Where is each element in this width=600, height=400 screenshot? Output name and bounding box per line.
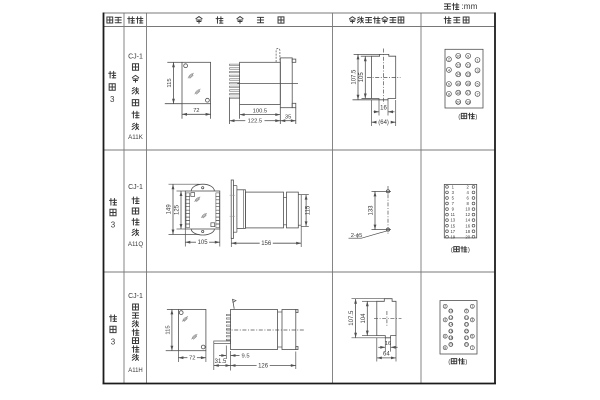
svg-text:15: 15 — [466, 82, 470, 86]
svg-text:16: 16 — [449, 329, 453, 333]
svg-text:20: 20 — [449, 343, 453, 347]
svg-text:31.5: 31.5 — [215, 359, 227, 365]
svg-text:CJ-1: CJ-1 — [128, 184, 143, 191]
svg-text:10: 10 — [465, 207, 470, 212]
svg-text:14: 14 — [449, 323, 453, 327]
svg-text:7: 7 — [471, 346, 473, 350]
svg-text:3: 3 — [476, 69, 478, 73]
svg-text:CJ-1: CJ-1 — [128, 54, 143, 61]
svg-text:19: 19 — [466, 100, 470, 104]
svg-text:1: 1 — [476, 58, 478, 62]
svg-text:10: 10 — [456, 54, 460, 58]
svg-text:16: 16 — [380, 105, 387, 111]
svg-text:8: 8 — [444, 346, 446, 350]
svg-text:): ) — [465, 358, 467, 365]
svg-text:11: 11 — [451, 212, 456, 217]
svg-text:3: 3 — [111, 220, 116, 229]
svg-text:6: 6 — [448, 82, 450, 86]
svg-text:35: 35 — [285, 115, 291, 121]
svg-text:10: 10 — [449, 309, 453, 313]
svg-text:): ) — [475, 113, 477, 120]
svg-text:(64): (64) — [378, 120, 389, 126]
svg-text:3: 3 — [471, 318, 473, 322]
svg-text:5: 5 — [471, 334, 473, 338]
svg-text:18: 18 — [465, 229, 470, 234]
svg-text:6: 6 — [444, 334, 446, 338]
svg-text:7: 7 — [476, 92, 478, 96]
svg-text:9: 9 — [466, 309, 468, 313]
svg-text:17: 17 — [465, 336, 469, 340]
svg-text:16: 16 — [465, 223, 470, 228]
svg-text:19: 19 — [450, 234, 455, 239]
svg-text:15: 15 — [450, 223, 455, 228]
svg-text:13: 13 — [465, 323, 469, 327]
svg-text:11: 11 — [466, 64, 470, 68]
svg-text:100.5: 100.5 — [253, 108, 268, 114]
svg-text:9: 9 — [467, 54, 469, 58]
svg-text:2-ϕ5: 2-ϕ5 — [351, 233, 363, 239]
svg-text:11: 11 — [465, 316, 469, 320]
svg-text:5: 5 — [476, 82, 478, 86]
svg-text:13: 13 — [466, 73, 470, 77]
svg-text:2: 2 — [448, 58, 450, 62]
svg-text:A11K: A11K — [128, 134, 144, 141]
svg-text:A11H: A11H — [128, 368, 143, 374]
svg-text:12: 12 — [449, 316, 453, 320]
svg-text:17: 17 — [450, 229, 455, 234]
svg-text:107.5: 107.5 — [352, 69, 358, 85]
svg-text:18: 18 — [449, 336, 453, 340]
svg-text:107.5: 107.5 — [349, 310, 355, 326]
svg-text:115: 115 — [167, 78, 173, 87]
svg-text:12: 12 — [465, 212, 470, 217]
svg-text:126: 126 — [258, 364, 269, 370]
svg-text:115: 115 — [166, 325, 172, 334]
svg-text:16: 16 — [385, 341, 391, 347]
svg-text:8: 8 — [448, 92, 450, 96]
svg-text:19: 19 — [465, 343, 469, 347]
svg-text:16: 16 — [456, 82, 460, 86]
svg-text:14: 14 — [456, 73, 460, 77]
svg-text:20: 20 — [465, 234, 470, 239]
svg-text:14: 14 — [465, 218, 470, 223]
svg-text:1: 1 — [471, 305, 473, 309]
svg-text:72: 72 — [189, 356, 195, 362]
svg-text:64: 64 — [383, 352, 390, 358]
svg-text:): ) — [468, 246, 470, 253]
svg-text:72: 72 — [193, 108, 199, 114]
svg-text:3: 3 — [110, 95, 115, 104]
svg-text:105: 105 — [359, 72, 365, 83]
svg-text:104: 104 — [361, 313, 367, 324]
svg-text:156: 156 — [261, 241, 272, 247]
svg-text:A11Q: A11Q — [128, 241, 144, 248]
svg-text:15: 15 — [465, 329, 469, 333]
svg-text:12: 12 — [456, 64, 460, 68]
svg-text:17: 17 — [466, 91, 470, 95]
svg-text:105: 105 — [198, 240, 209, 246]
svg-text:122.5: 122.5 — [248, 119, 263, 125]
svg-text:149: 149 — [167, 204, 173, 215]
svg-text::mm: :mm — [462, 2, 478, 11]
svg-text:125: 125 — [175, 204, 181, 215]
svg-text:115: 115 — [306, 205, 312, 215]
svg-text:20: 20 — [456, 100, 460, 104]
svg-text:9.5: 9.5 — [242, 354, 250, 360]
svg-text:4: 4 — [448, 68, 450, 72]
svg-text:2: 2 — [444, 305, 446, 309]
svg-text:3: 3 — [111, 338, 116, 347]
svg-text:13: 13 — [450, 218, 455, 223]
svg-text:133: 133 — [369, 205, 375, 216]
svg-text:4: 4 — [444, 318, 446, 322]
svg-text:CJ-1: CJ-1 — [128, 293, 143, 300]
svg-text:18: 18 — [456, 91, 460, 95]
